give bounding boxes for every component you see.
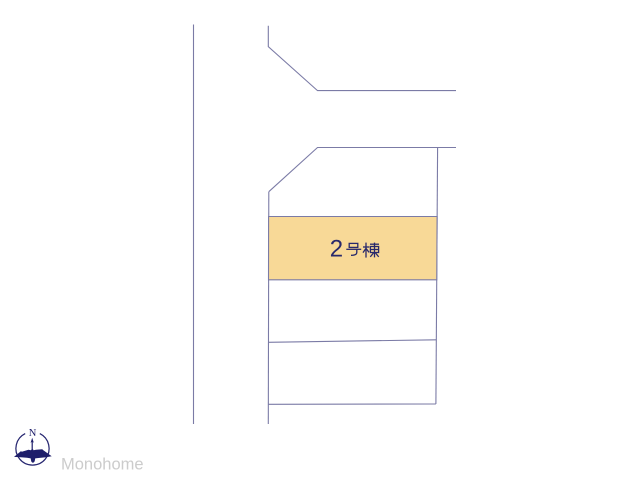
svg-text:Monohome: Monohome: [61, 455, 144, 473]
svg-text:N: N: [29, 428, 37, 439]
svg-text:2: 2: [330, 236, 343, 263]
